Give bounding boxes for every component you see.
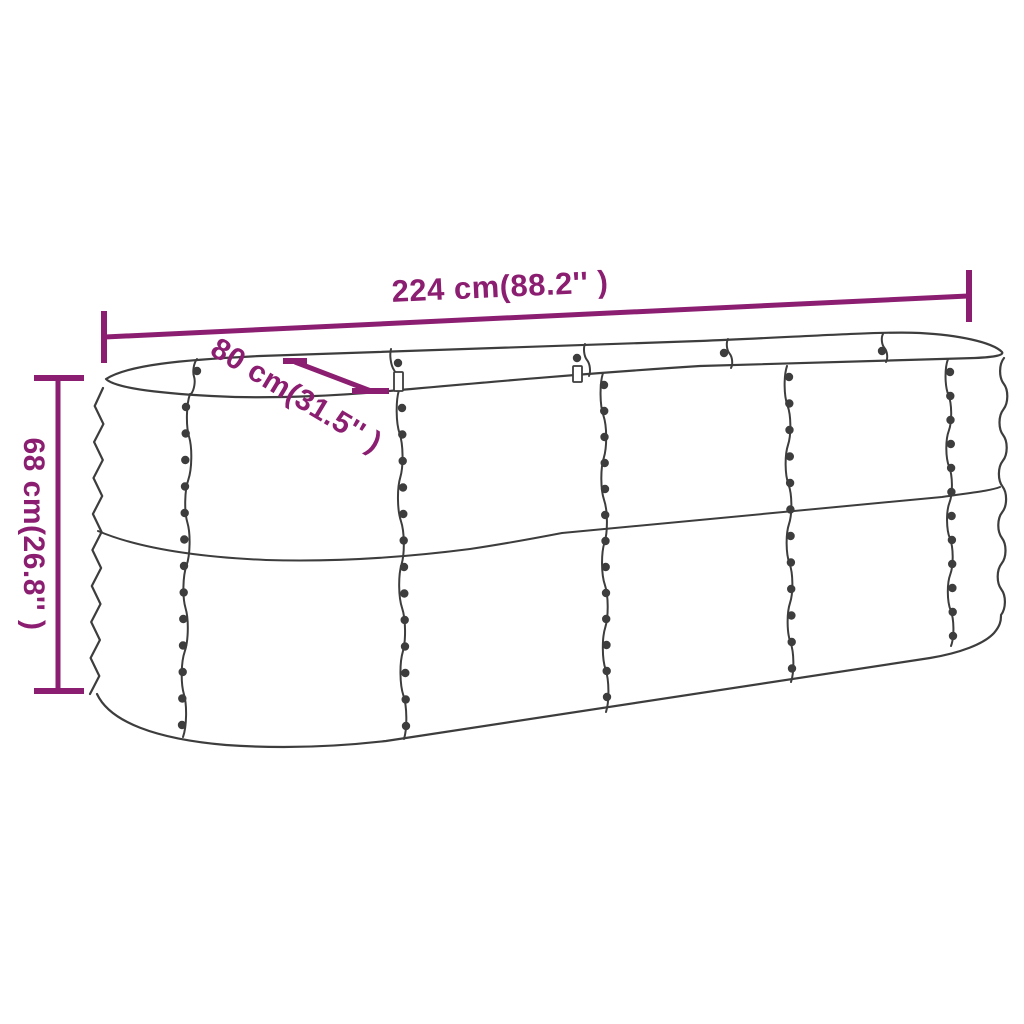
rivet-dot xyxy=(401,616,409,624)
rivet-dot xyxy=(600,381,608,389)
rivet-dot xyxy=(788,664,796,672)
rivet-dot xyxy=(786,505,794,513)
rivet-dot xyxy=(401,642,409,650)
rivet-dot xyxy=(949,608,957,616)
rivet-dot xyxy=(785,399,793,407)
rivet-dot xyxy=(179,668,187,676)
rivet-dot xyxy=(603,667,611,675)
rivet-dot xyxy=(398,404,406,412)
rivet-dot xyxy=(402,722,410,730)
rivet-dot xyxy=(948,536,956,544)
rim-seam xyxy=(191,359,197,394)
rivet-dot xyxy=(785,373,793,381)
dimension-diagram: 224 cm(88.2'' ) 68 cm(26.8'' ) 80 cm(31.… xyxy=(0,0,1024,1024)
rivet-dot xyxy=(600,433,608,441)
rivet-dot xyxy=(399,457,407,465)
rivet-dot xyxy=(947,488,955,496)
rivet-dot xyxy=(601,511,609,519)
rivet-dot xyxy=(946,392,954,400)
rivet-dot xyxy=(179,615,187,623)
rivet-dot xyxy=(785,426,793,434)
rivet-dot xyxy=(946,368,954,376)
rivet-dot xyxy=(602,641,610,649)
rivet-dot xyxy=(400,589,408,597)
rivet-dot xyxy=(949,632,957,640)
rivet-dot xyxy=(600,407,608,415)
rivet-dot xyxy=(787,585,795,593)
rivet-dot xyxy=(180,562,188,570)
height-dimension-label: 68 cm(26.8'' ) xyxy=(16,437,50,630)
rivet-dot xyxy=(602,563,610,571)
rivet-dot xyxy=(602,615,610,623)
rivet-dot xyxy=(573,354,581,362)
bottom-edge xyxy=(97,616,1001,747)
rivet-dot xyxy=(948,560,956,568)
rim-clip xyxy=(573,366,582,382)
mid-panel-seam xyxy=(98,487,1000,561)
rivet-dot xyxy=(603,693,611,701)
rivet-dot xyxy=(399,483,407,491)
rivet-dot xyxy=(786,479,794,487)
rivet-dot xyxy=(878,347,886,355)
rivet-dot xyxy=(400,536,408,544)
rivet-dot xyxy=(182,403,190,411)
rivet-dot xyxy=(947,464,955,472)
rivet-dot xyxy=(181,509,189,517)
rivet-dot xyxy=(720,349,728,357)
rivet-dot xyxy=(787,558,795,566)
rivet-dot xyxy=(398,430,406,438)
rivet-dot xyxy=(947,512,955,520)
rivet-dot xyxy=(181,456,189,464)
rivet-dot xyxy=(399,510,407,518)
rivet-dot xyxy=(946,416,954,424)
rivet-dot xyxy=(400,563,408,571)
panel-seam xyxy=(785,366,794,682)
rivet-dot xyxy=(788,638,796,646)
rivet-dot xyxy=(786,452,794,460)
rivet-dot xyxy=(402,695,410,703)
planter-line-drawing xyxy=(0,0,1024,1024)
left-corrugated-edge xyxy=(90,388,103,694)
rivet-dot xyxy=(180,535,188,543)
planter-body xyxy=(90,333,1007,747)
rivet-dot xyxy=(180,588,188,596)
rivet-dot xyxy=(178,694,186,702)
rivet-dot xyxy=(602,589,610,597)
rivet-dot xyxy=(947,440,955,448)
rivet-dot xyxy=(394,359,402,367)
rivet-dot xyxy=(601,537,609,545)
rivet-dot xyxy=(601,485,609,493)
rivet-dot xyxy=(182,429,190,437)
rivet-dot xyxy=(786,532,794,540)
rim-clip xyxy=(394,372,403,391)
rivet-dot xyxy=(948,584,956,592)
panel-seam xyxy=(946,359,954,646)
rivet-dot xyxy=(179,641,187,649)
rivet-dot xyxy=(181,482,189,490)
rivet-dot xyxy=(787,611,795,619)
rivet-dot xyxy=(193,367,201,375)
rivet-dot xyxy=(178,721,186,729)
rim-seam xyxy=(584,344,590,376)
rivet-dot xyxy=(601,459,609,467)
rivet-dot xyxy=(401,669,409,677)
